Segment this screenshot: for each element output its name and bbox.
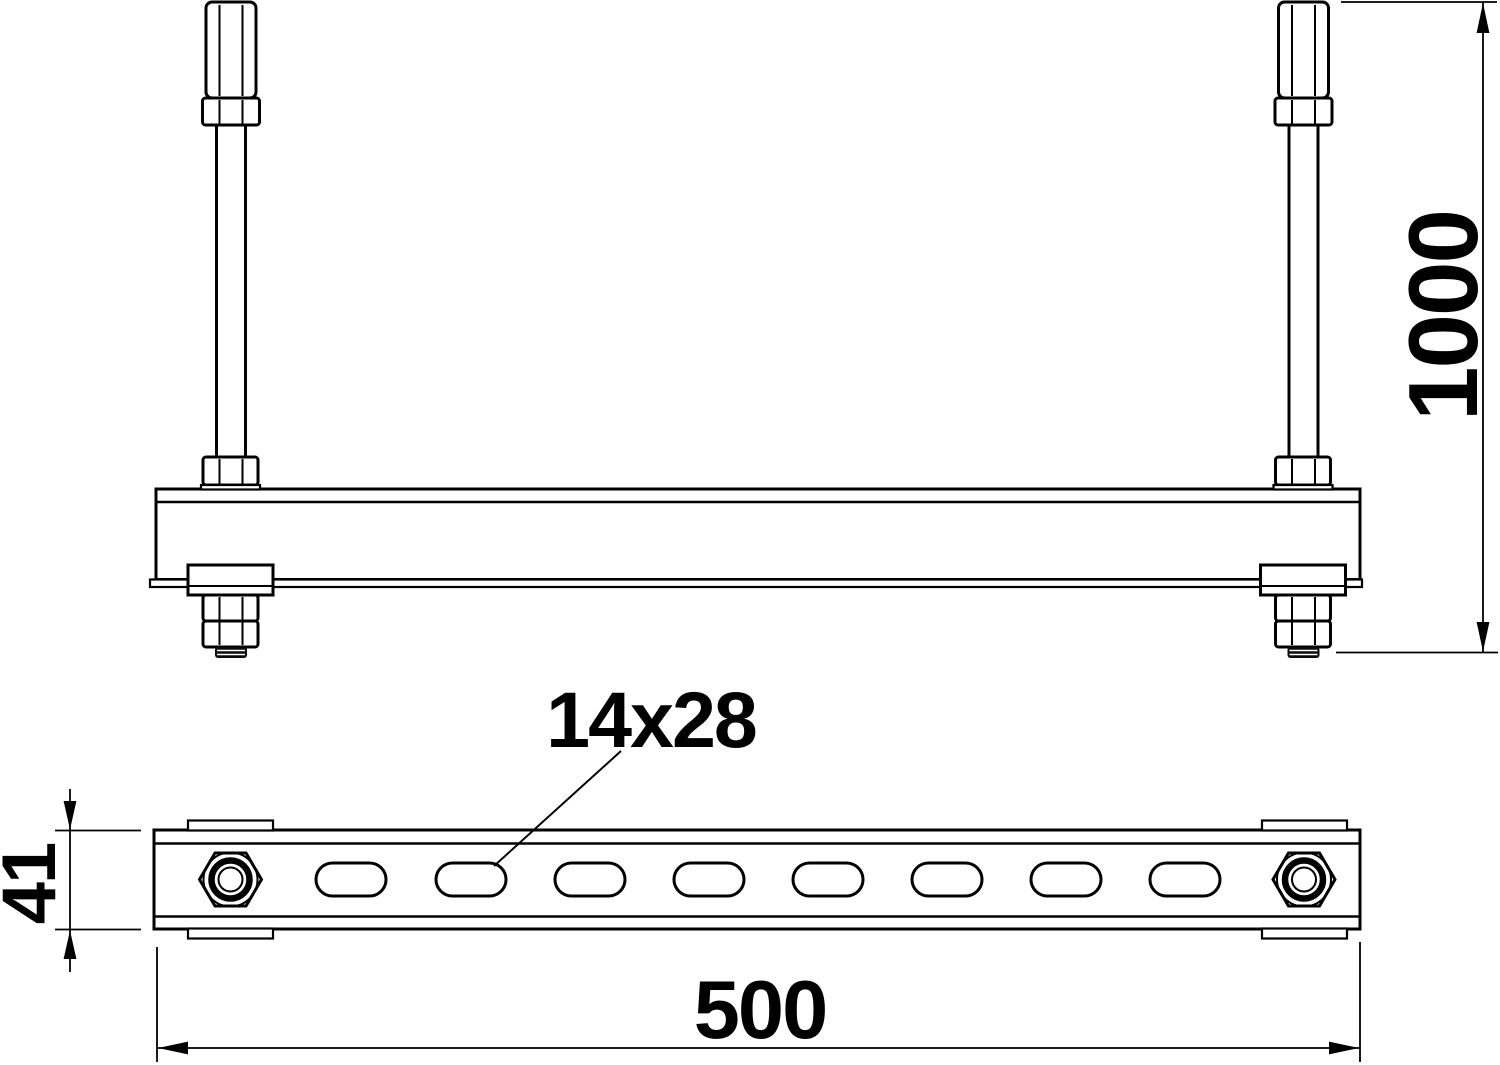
slot-hole [674, 863, 744, 896]
arrowhead-up [64, 931, 77, 960]
slot-hole [912, 863, 982, 896]
rail-top-nut-left [201, 457, 260, 490]
slot-hole [555, 863, 625, 896]
arrowhead-down [1477, 622, 1490, 652]
dimension-label-1000: 1000 [1388, 211, 1498, 421]
threaded-rod-left [203, 2, 260, 458]
slide-plate-left [188, 565, 273, 595]
slot-hole [1150, 863, 1220, 896]
dimension-label-slot-size: 14x28 [546, 675, 756, 764]
rail-top-nut-right [1274, 457, 1333, 490]
slot-hole [793, 863, 863, 896]
slot-hole [1031, 863, 1101, 896]
drawing-svg: 1000 [0, 0, 1500, 1065]
thread-end-left [215, 647, 247, 658]
plate-edge-top-left [188, 821, 273, 831]
plate-edge-top-right [1262, 821, 1347, 831]
dimension-rail-height: 41 [0, 789, 141, 972]
washer-right [1274, 485, 1333, 490]
plate-edge-bottom-left [188, 929, 273, 939]
arrowhead-down [64, 801, 77, 830]
dimension-label-41: 41 [0, 843, 72, 924]
plate-edge-bottom-right [1262, 929, 1347, 939]
technical-drawing-page: 1000 [0, 0, 1500, 1065]
front-view [150, 2, 1362, 658]
dimension-rail-length: 500 [157, 942, 1360, 1062]
slot-hole [436, 863, 506, 896]
arrowhead-up [1477, 3, 1490, 33]
lower-nuts-left [203, 595, 258, 658]
threaded-rod-right [1275, 2, 1332, 458]
washer-left [201, 485, 260, 490]
arrowhead-right [1329, 1042, 1359, 1055]
top-view: 14x28 [154, 675, 1360, 939]
arrowhead-left [158, 1042, 188, 1055]
hex-coupler-left [206, 2, 256, 98]
dimension-label-500: 500 [694, 963, 826, 1056]
lower-nuts-right [1276, 595, 1331, 658]
thread-end-right [1288, 647, 1320, 658]
slide-plate-right [1261, 565, 1346, 595]
lock-nut-right [1275, 98, 1332, 125]
hex-coupler-right [1279, 2, 1329, 98]
slot-hole [316, 863, 386, 896]
rail-front [150, 489, 1362, 587]
rail-bottom-lip [150, 580, 1362, 588]
lock-nut-left [203, 98, 260, 125]
